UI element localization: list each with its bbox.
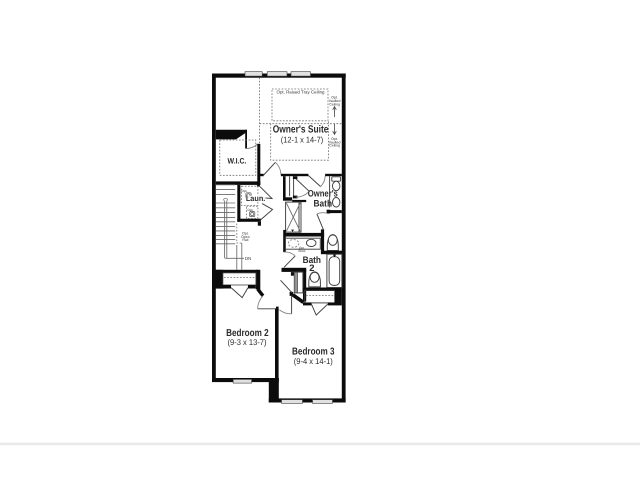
svg-text:2: 2 — [309, 262, 314, 273]
svg-text:W.I.C.: W.I.C. — [228, 156, 247, 165]
svg-text:Rail: Rail — [242, 238, 248, 242]
svg-text:Ceiling: Ceiling — [329, 144, 340, 148]
svg-text:DN: DN — [245, 256, 251, 261]
svg-text:(9-4 x 14-1): (9-4 x 14-1) — [294, 356, 333, 366]
svg-text:Ceiling: Ceiling — [329, 102, 340, 106]
svg-text:(9-3 x 13-7): (9-3 x 13-7) — [228, 337, 267, 347]
svg-text:(12-1 x 14-7): (12-1 x 14-7) — [281, 134, 324, 144]
svg-text:Bowl: Bowl — [298, 249, 305, 253]
svg-text:Opt. Raised Tray Ceiling: Opt. Raised Tray Ceiling — [277, 90, 326, 95]
svg-text:Laun.: Laun. — [246, 194, 266, 203]
